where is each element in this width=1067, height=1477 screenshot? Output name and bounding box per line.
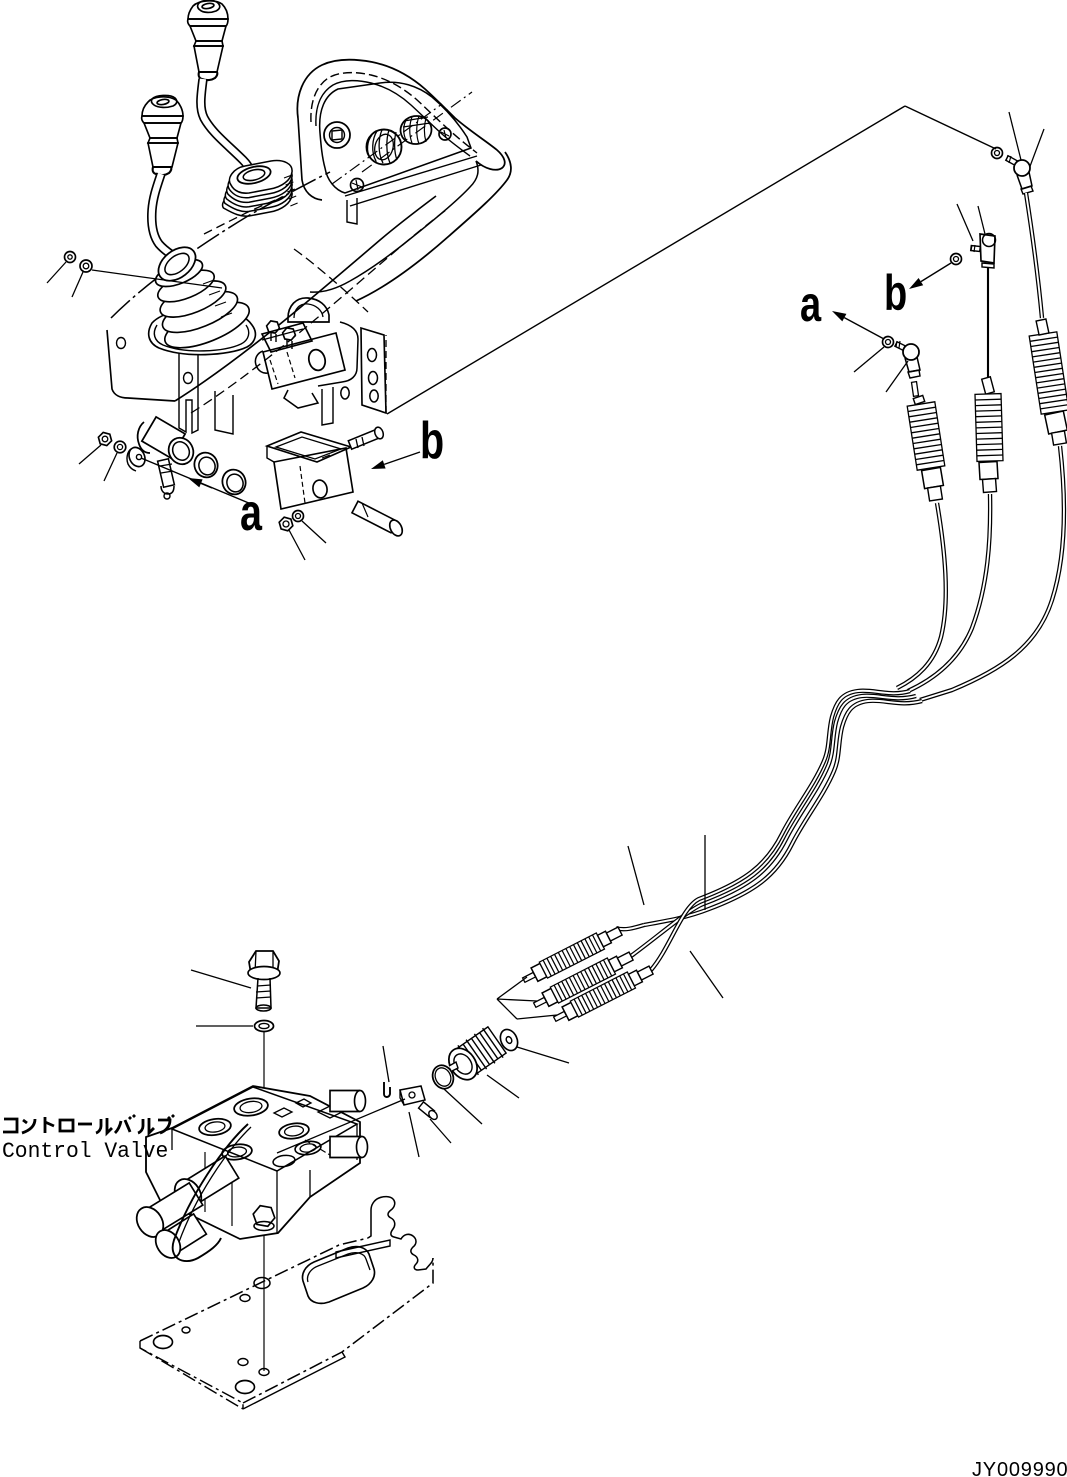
svg-text:b: b xyxy=(884,266,907,321)
svg-text:JY009990: JY009990 xyxy=(972,1459,1067,1477)
svg-text:b: b xyxy=(420,411,444,470)
svg-text:a: a xyxy=(800,277,821,332)
svg-text:Control Valve: Control Valve xyxy=(2,1139,168,1164)
svg-text:a: a xyxy=(240,483,262,542)
